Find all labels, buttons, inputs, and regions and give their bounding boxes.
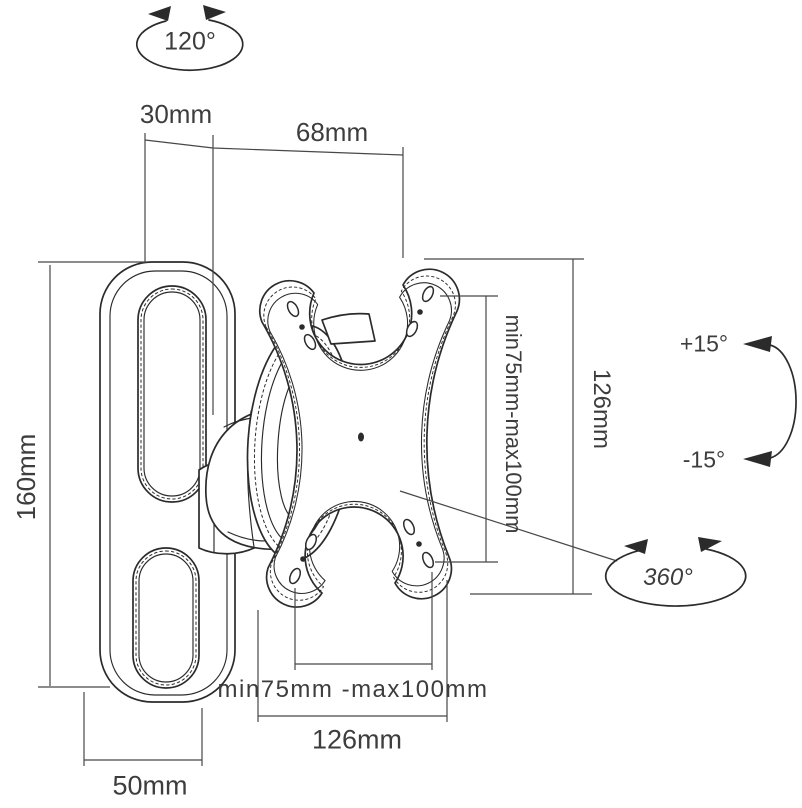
label-vesa-horizontal-range: min75mm -max100mm [218, 678, 489, 702]
label-bracket-width-50mm: 50mm [112, 773, 187, 800]
label-plate-height-126mm: 126mm [589, 369, 613, 449]
label-tilt-down-15: -15° [683, 449, 725, 472]
label-swivel-range-120: 120° [164, 30, 216, 55]
label-arm-extension-68mm: 68mm [296, 119, 368, 145]
vesa-clamp [322, 314, 375, 344]
label-rotation-360: 360° [643, 566, 693, 590]
wall-mount-technical-drawing: 120° 30mm 68mm min75mm-max100mm 126mm +1… [0, 0, 802, 808]
label-tilt-up-15: +15° [680, 333, 728, 356]
label-vesa-vertical-range: min75mm-max100mm [502, 315, 524, 534]
label-wall-offset-30mm: 30mm [140, 101, 212, 127]
tilt-arrow-icon [743, 336, 796, 467]
label-plate-width-126mm: 126mm [312, 727, 402, 754]
label-bracket-height-160mm: 160mm [13, 434, 39, 521]
